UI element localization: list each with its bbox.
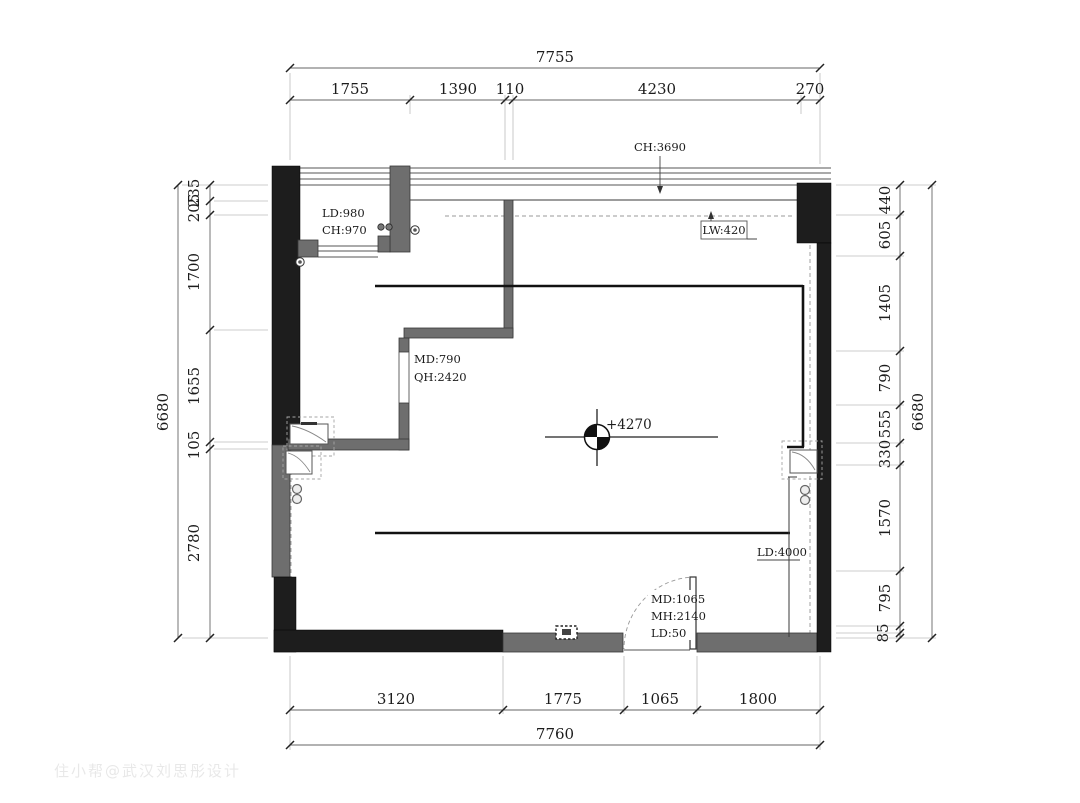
dim-top-seg-5: 270 [796,80,825,98]
dim-chain-top: 7755 1755 1390 110 4230 270 [286,48,824,104]
dim-left-seg-5: 105 [185,431,203,460]
downlight-icon [293,485,302,494]
ceiling-drop-callout: LD:4000 [757,545,807,560]
vent-icon [286,451,312,474]
watermark: 住小帮@武汉刘思彤设计 [54,760,241,781]
dim-top-seg-3: 110 [496,80,525,98]
door-height-label: MH:2140 [651,609,706,623]
dim-top-total: 7755 [536,48,574,66]
floor-plan-canvas: 7755 1755 1390 110 4230 270 3120 1775 10… [0,0,1080,803]
downlight-icon [386,224,392,230]
downlight-icon [293,495,302,504]
vent-icon [790,450,817,473]
column-top [390,166,410,252]
dim-left-seg-3: 1700 [185,253,203,291]
dim-bottom-seg-4: 1800 [739,690,777,708]
dim-top-seg-4: 4230 [638,80,676,98]
elevation-label: +4270 [606,417,652,433]
dim-left-seg-6: 2780 [185,524,203,562]
light-trough-label: LW:420 [702,223,745,237]
dim-right-seg-2: 605 [876,221,894,250]
column-foot [378,236,390,252]
wall-fixture [556,626,577,639]
wall-right-black [817,243,831,652]
wall-bottom-black [274,630,503,652]
dim-right-seg-5: 555 [876,410,894,439]
dim-right-seg-9: 85 [874,623,892,642]
partition-horizontal [404,328,513,338]
dim-chain-bottom: 3120 1775 1065 1800 7760 [286,690,824,749]
dim-bottom-seg-3: 1065 [641,690,679,708]
elevation-marker: +4270 [545,409,718,466]
dim-right-seg-3: 1405 [876,284,894,322]
downlight-icon [801,486,810,495]
dim-bottom-total: 7760 [536,725,574,743]
wall-top-right-black [797,183,831,243]
entry-door: MD:1065 MH:2140 LD:50 [624,577,706,649]
ceiling-drop-label: LD:4000 [757,545,807,559]
balcony-height-label: CH:970 [322,223,367,237]
light-trough-callout: LW:420 [701,211,757,239]
leader-arrow-icon [657,186,663,194]
dim-bottom-seg-2: 1775 [544,690,582,708]
dim-top-seg-1: 1755 [331,80,369,98]
wall-bottom-gray-right [697,633,817,652]
dim-left-seg-4: 1655 [185,367,203,405]
ceiling-height-callout: CH:3690 [634,140,686,194]
dim-right-seg-6: 330 [876,440,894,469]
dashed-lines [291,216,810,649]
dim-left-total: 6680 [154,393,172,431]
dim-chain-left: 235 205 1700 1655 105 2780 6680 [154,179,214,642]
dim-right-seg-8: 795 [876,584,894,613]
dim-bottom-seg-1: 3120 [377,690,415,708]
dim-right-seg-1: 440 [876,186,894,215]
dim-right-seg-7: 1570 [876,499,894,537]
ceiling-height-label: CH:3690 [634,140,686,154]
floor-plan-drawing: 7755 1755 1390 110 4230 270 3120 1775 10… [0,0,1080,803]
downlights [293,224,810,505]
sill-end-block [298,240,318,257]
wall-left-black [272,166,300,445]
dim-right-total: 6680 [909,393,927,431]
downlight-icon [801,496,810,505]
leader-arrow-up-icon [708,211,714,219]
balcony-drop-label: LD:980 [322,206,365,220]
dim-left-seg-2: 205 [185,194,203,223]
passage-jamb-top [399,338,409,352]
passage-width-label: MD:790 [414,352,461,366]
dim-right-seg-4: 790 [876,364,894,393]
partition-vertical [504,200,513,337]
passage-labels: MD:790 QH:2420 [414,352,467,384]
door-width-label: MD:1065 [651,592,705,606]
downlight-icon [378,224,384,230]
dim-chain-right: 440 605 1405 790 555 330 1570 795 85 668… [874,181,936,643]
dim-top-seg-2: 1390 [439,80,477,98]
passage-height-label: QH:2420 [414,370,467,384]
door-drop-label: LD:50 [651,626,686,640]
balcony-labels: LD:980 CH:970 [322,206,367,237]
